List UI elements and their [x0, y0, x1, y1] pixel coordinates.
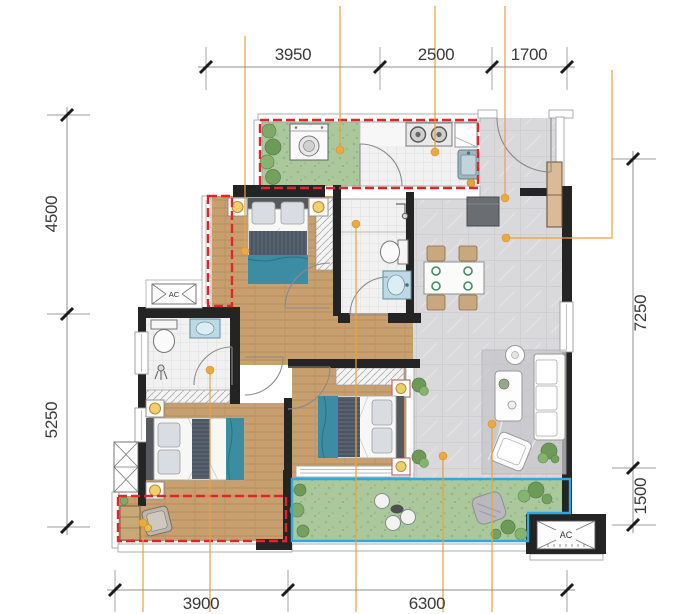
stove	[406, 123, 452, 146]
ac-unit-left: AC	[146, 280, 202, 308]
floor-plan: AC AC 3950 2500 1700	[0, 0, 674, 614]
bed	[318, 396, 404, 458]
ac-unit-bottom-left	[114, 442, 138, 492]
kitchen-sink	[458, 150, 479, 179]
dim-top-3: 1700	[511, 45, 548, 64]
toilet	[381, 240, 409, 264]
dimension-bottom: 3900 6300	[107, 570, 575, 613]
lamp	[396, 384, 406, 394]
dim-left-2: 5250	[42, 402, 61, 439]
dim-right-1: 7250	[631, 295, 650, 332]
ac-platform-sill	[530, 554, 603, 560]
dimension-top: 3950 2500 1700	[198, 45, 575, 90]
dim-left-1: 4500	[42, 196, 61, 233]
washing-machine	[290, 124, 328, 160]
dim-bottom-1: 3900	[183, 594, 220, 613]
living-room	[482, 346, 566, 475]
ac-label-main: AC	[560, 530, 573, 540]
bed	[146, 418, 244, 480]
kitchen-cabinet	[455, 123, 477, 147]
toilet	[151, 320, 177, 353]
dim-right-2: 1500	[631, 478, 650, 515]
sofa	[534, 354, 565, 440]
desk	[120, 506, 140, 540]
lamp	[313, 202, 324, 213]
lamp	[150, 485, 161, 496]
dimension-right: 7250 1500	[612, 151, 656, 533]
kitchen-basket	[467, 179, 475, 187]
dim-top-1: 3950	[275, 45, 312, 64]
plant	[120, 497, 128, 505]
corridor-floor	[233, 307, 413, 365]
ac-unit-bottom-right: AC	[537, 521, 595, 549]
lamp	[396, 462, 406, 472]
ac-label-side: AC	[169, 290, 180, 299]
entry-top-wall-left	[478, 110, 497, 118]
dim-top-2: 2500	[418, 45, 455, 64]
dim-bottom-2: 6300	[409, 594, 446, 613]
lamp	[150, 403, 161, 414]
coffee-table	[495, 371, 522, 421]
fridge	[467, 197, 499, 226]
bed	[248, 198, 308, 284]
dimension-left: 4500 5250	[42, 107, 90, 535]
floor-plan-canvas: AC AC 3950 2500 1700	[0, 0, 674, 614]
bedroom2-window	[202, 196, 211, 308]
vanity-sink	[190, 319, 220, 338]
lamp	[232, 202, 243, 213]
vanity-sink	[383, 271, 411, 299]
